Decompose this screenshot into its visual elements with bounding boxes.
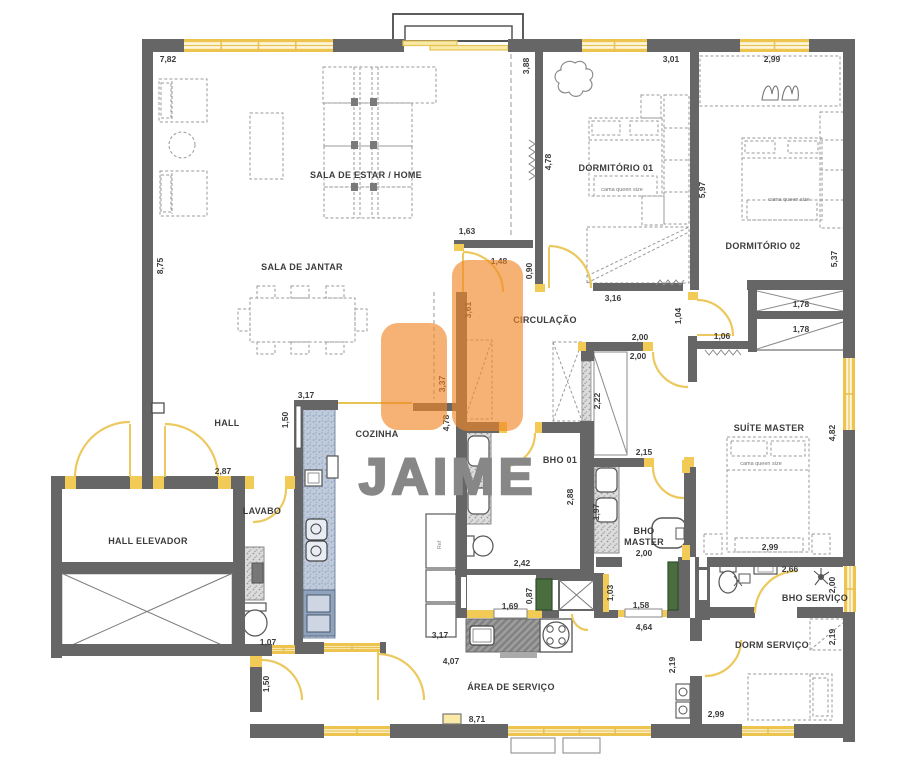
svg-text:BHO SERVIÇO: BHO SERVIÇO [782, 593, 848, 603]
svg-text:1,07: 1,07 [260, 637, 277, 647]
svg-text:0,87: 0,87 [524, 587, 534, 604]
svg-text:SALA DE ESTAR / HOME: SALA DE ESTAR / HOME [310, 170, 422, 180]
svg-text:1,97: 1,97 [591, 503, 601, 520]
svg-text:BHO: BHO [634, 526, 655, 536]
svg-text:2,66: 2,66 [782, 564, 799, 574]
svg-text:3,01: 3,01 [663, 54, 680, 64]
svg-text:1,03: 1,03 [605, 584, 615, 601]
svg-text:cama queen size: cama queen size [768, 197, 810, 203]
svg-text:HALL ELEVADOR: HALL ELEVADOR [108, 536, 188, 546]
svg-text:3,16: 3,16 [605, 293, 622, 303]
svg-text:2,19: 2,19 [827, 628, 837, 645]
svg-text:COZINHA: COZINHA [355, 429, 398, 439]
svg-text:2,00: 2,00 [827, 576, 837, 593]
svg-text:2,19: 2,19 [667, 656, 677, 673]
svg-text:1,06: 1,06 [714, 331, 731, 341]
svg-text:3,17: 3,17 [432, 630, 449, 640]
svg-text:3,17: 3,17 [298, 390, 315, 400]
svg-text:2,00: 2,00 [636, 548, 653, 558]
svg-text:2,87: 2,87 [215, 466, 232, 476]
svg-text:1,04: 1,04 [673, 307, 683, 324]
svg-text:2,99: 2,99 [762, 542, 779, 552]
svg-text:1,78: 1,78 [793, 299, 810, 309]
svg-text:JAIME: JAIME [359, 448, 537, 505]
svg-text:2,99: 2,99 [764, 54, 781, 64]
svg-text:MASTER: MASTER [624, 537, 664, 547]
svg-text:1,69: 1,69 [502, 601, 519, 611]
svg-text:2,88: 2,88 [565, 488, 575, 505]
svg-text:2,15: 2,15 [636, 447, 653, 457]
svg-text:5,97: 5,97 [697, 181, 707, 198]
svg-text:3,88: 3,88 [521, 57, 531, 74]
svg-text:SALA DE JANTAR: SALA DE JANTAR [261, 262, 343, 272]
svg-text:DORM SERVIÇO: DORM SERVIÇO [735, 640, 809, 650]
svg-text:7,82: 7,82 [160, 54, 177, 64]
svg-text:4,64: 4,64 [636, 622, 653, 632]
svg-text:2,99: 2,99 [708, 709, 725, 719]
svg-text:cama queen size: cama queen size [740, 461, 782, 467]
svg-text:4,82: 4,82 [827, 424, 837, 441]
svg-text:BHO 01: BHO 01 [543, 455, 577, 465]
svg-text:8,75: 8,75 [155, 257, 165, 274]
svg-text:1,50: 1,50 [261, 675, 271, 692]
svg-text:1,58: 1,58 [633, 600, 650, 610]
svg-text:2,22: 2,22 [592, 392, 602, 409]
svg-text:ÁREA DE SERVIÇO: ÁREA DE SERVIÇO [467, 682, 555, 692]
svg-text:2,42: 2,42 [514, 558, 531, 568]
svg-text:1,50: 1,50 [280, 411, 290, 428]
svg-text:1,63: 1,63 [459, 226, 476, 236]
svg-text:4,78: 4,78 [543, 153, 553, 170]
svg-text:8,71: 8,71 [469, 714, 486, 724]
svg-text:LAVABO: LAVABO [243, 506, 281, 516]
svg-text:DORMITÓRIO 02: DORMITÓRIO 02 [726, 240, 801, 251]
svg-text:5,37: 5,37 [829, 250, 839, 267]
svg-text:Ref: Ref [437, 540, 443, 549]
svg-text:HALL: HALL [214, 418, 239, 428]
svg-text:2,00: 2,00 [630, 351, 647, 361]
svg-text:4,07: 4,07 [443, 656, 460, 666]
svg-text:cama queen size: cama queen size [601, 187, 643, 193]
svg-text:SUÍTE MASTER: SUÍTE MASTER [734, 423, 805, 433]
svg-text:0,90: 0,90 [524, 262, 534, 279]
svg-text:1,78: 1,78 [793, 324, 810, 334]
svg-text:2,00: 2,00 [632, 332, 649, 342]
svg-text:DORMITÓRIO 01: DORMITÓRIO 01 [579, 162, 654, 173]
